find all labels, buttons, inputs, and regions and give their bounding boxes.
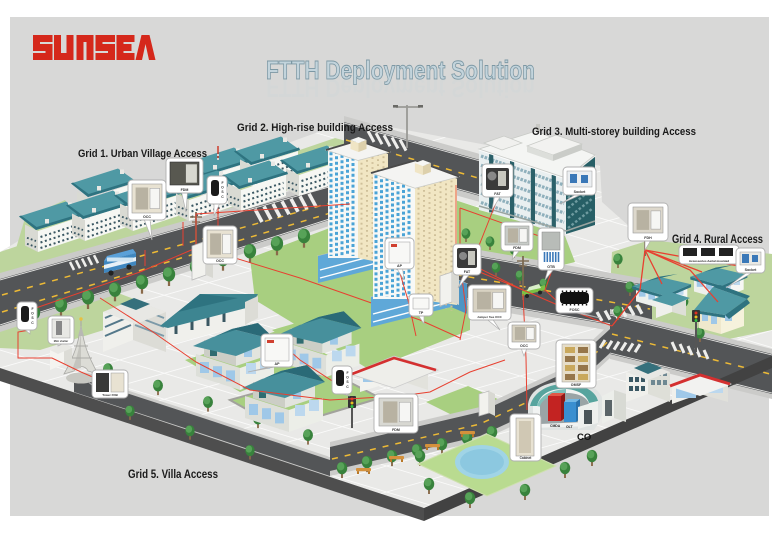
- svg-text:Cabinet: Cabinet: [520, 456, 533, 460]
- svg-text:FDM: FDM: [181, 188, 189, 192]
- svg-text:OCC: OCC: [216, 259, 224, 263]
- svg-text:FDM: FDM: [392, 428, 400, 432]
- svg-text:Jumper free OCC: Jumper free OCC: [477, 315, 503, 319]
- svg-text:Tower FDB: Tower FDB: [102, 393, 118, 397]
- svg-text:AP: AP: [397, 264, 403, 268]
- svg-text:O: O: [221, 186, 224, 190]
- svg-text:FOSC: FOSC: [570, 308, 580, 312]
- svg-text:Socket: Socket: [745, 268, 758, 272]
- svg-text:Grid 3. Multi-storey building: Grid 3. Multi-storey building Access: [532, 126, 696, 138]
- svg-text:OCC: OCC: [520, 344, 528, 348]
- svg-text:OMSF: OMSF: [571, 383, 582, 387]
- svg-text:Grid 4. Rural Access: Grid 4. Rural Access: [672, 234, 763, 246]
- svg-text:O: O: [31, 312, 34, 316]
- svg-text:Mini shelter: Mini shelter: [54, 339, 68, 343]
- svg-text:FAT: FAT: [494, 192, 501, 196]
- svg-text:Accessories Aerial mounted: Accessories Aerial mounted: [689, 259, 729, 263]
- svg-text:F: F: [31, 307, 33, 311]
- svg-text:FDM: FDM: [513, 246, 521, 250]
- svg-text:TP: TP: [419, 311, 424, 315]
- svg-text:FTTH Deployment Solution: FTTH Deployment Solution: [266, 73, 535, 103]
- svg-text:OCC: OCC: [143, 215, 151, 219]
- svg-text:Socket: Socket: [574, 190, 587, 194]
- svg-text:F: F: [346, 371, 348, 375]
- svg-text:FDH: FDH: [644, 236, 652, 240]
- svg-text:O: O: [346, 376, 349, 380]
- svg-text:F: F: [221, 181, 223, 185]
- svg-text:AP: AP: [275, 362, 281, 366]
- svg-text:Grid 5. Villa Access: Grid 5. Villa Access: [128, 467, 218, 481]
- svg-text:Grid 1. Urban Village Access: Grid 1. Urban Village Access: [78, 148, 207, 160]
- svg-text:OLT: OLT: [566, 425, 573, 429]
- svg-text:CO: CO: [577, 432, 591, 443]
- svg-text:Grid 2. High-rise building Acc: Grid 2. High-rise building Access: [237, 122, 393, 134]
- svg-text:OTB: OTB: [547, 265, 555, 269]
- svg-text:FAT: FAT: [464, 270, 471, 274]
- svg-text:CMDA: CMDA: [550, 424, 561, 428]
